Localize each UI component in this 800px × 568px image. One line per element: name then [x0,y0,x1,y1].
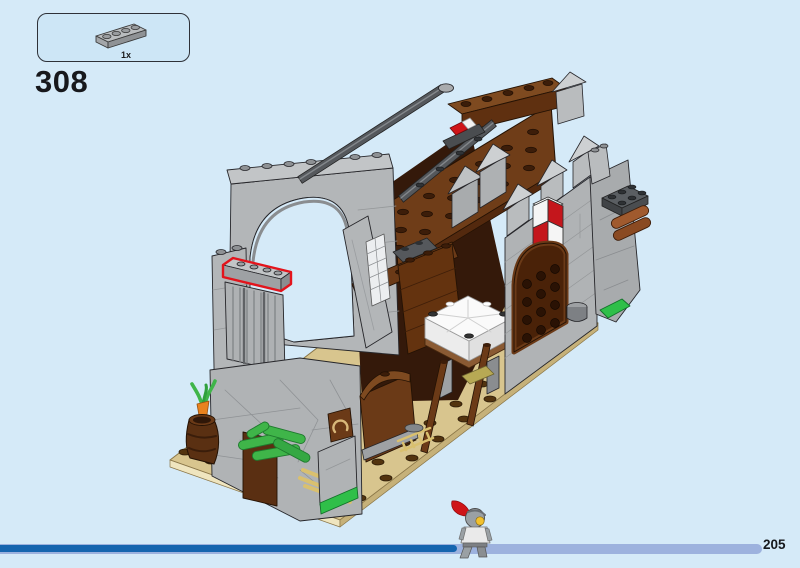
lattice-window [366,234,390,306]
timber-roof [393,72,586,276]
instruction-page: 205 1x 308 [0,0,800,568]
arched-door [514,243,566,352]
chimney-arch-brick [610,204,650,230]
quartered-shield [533,197,563,250]
progress-bar-fill [0,545,457,552]
page-number: 205 [763,537,786,552]
grille-wall [225,282,285,372]
baseplate [170,262,598,527]
carrot-icon [197,401,209,421]
ladder-and-planks [300,366,494,502]
right-end-column [567,144,652,322]
doorway-opening [243,432,277,506]
hanging-column [318,436,358,514]
stone-archway [227,153,399,356]
castle-facade [448,136,599,394]
green-corner-plate [600,299,630,318]
left-tower [212,246,250,479]
barrel-with-carrot [186,381,219,464]
part-quantity: 1x [121,50,131,60]
support-posts [421,343,491,453]
plate-1x4-light-gray-icon: 1x [38,14,188,60]
rocky-wall [210,358,362,521]
new-part-highlight-outline [223,258,291,291]
highlighted-part-1x4-plate [223,258,291,291]
step-illustration [0,0,800,568]
workbench-table [425,296,512,398]
interior-shadow [352,128,508,402]
horseshoe-icon [333,421,347,432]
bellows-chest [360,371,418,462]
parts-callout: 1x [37,13,190,62]
horseshoe-tile [328,408,353,442]
red-flag-tile [450,122,468,135]
plume-icon [452,501,469,516]
overhead-rails [298,84,497,202]
step-number: 308 [35,64,88,100]
plant-stems-pile [238,421,312,464]
workshop-interior [343,216,462,354]
